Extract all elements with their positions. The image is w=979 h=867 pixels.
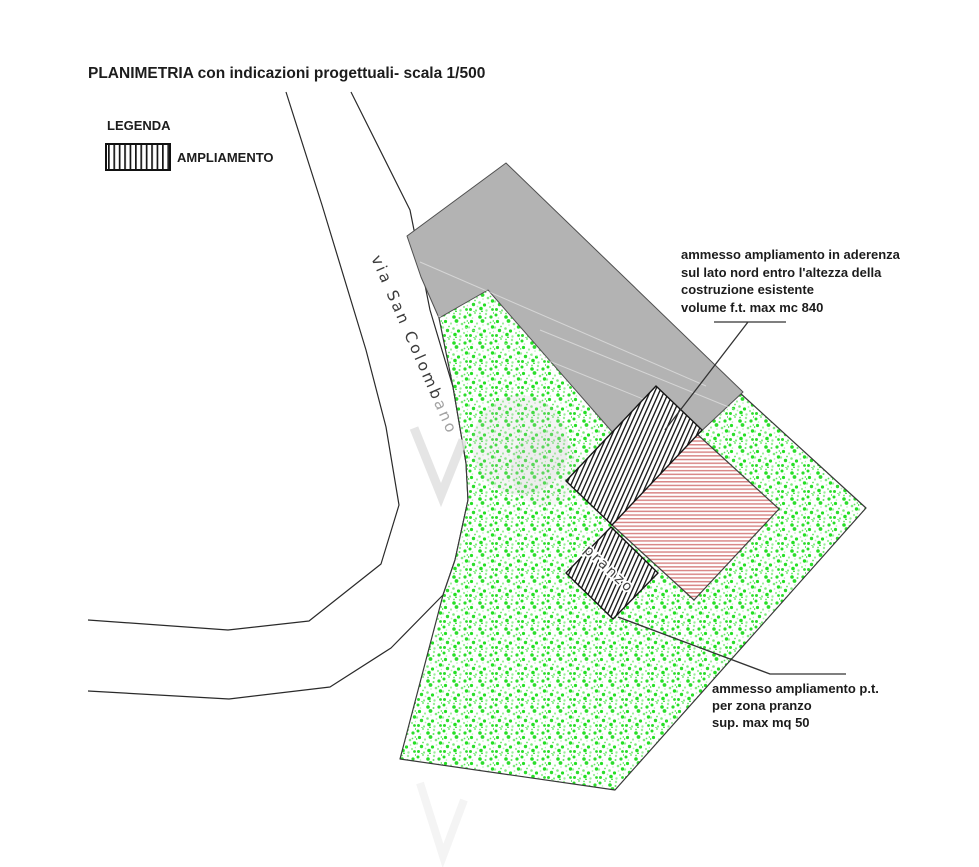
page-title: PLANIMETRIA con indicazioni progettuali-… (88, 65, 485, 82)
legend-item-label: AMPLIAMENTO (177, 150, 274, 165)
site-plan-page: pranzo via San Colombano PLANIMETRIA con… (0, 0, 979, 867)
annotation-south-line-1: ammesso ampliamento p.t. (712, 681, 879, 696)
legend-swatch-vertical-hatch-icon (106, 144, 170, 170)
watermark-cloud-2 (511, 430, 579, 506)
legend-heading: LEGENDA (107, 118, 171, 133)
annotation-north-line-3: costruzione esistente (681, 282, 814, 297)
annotation-north-line-2: sul lato nord entro l'altezza della (681, 265, 882, 280)
annotation-north-line-1: ammesso ampliamento in aderenza (681, 247, 901, 262)
site-plan-drawing: pranzo via San Colombano PLANIMETRIA con… (0, 0, 979, 867)
annotation-north-line-4: volume f.t. max mc 840 (681, 300, 823, 315)
annotation-south-line-2: per zona pranzo (712, 698, 812, 713)
annotation-south-line-3: sup. max mq 50 (712, 715, 810, 730)
